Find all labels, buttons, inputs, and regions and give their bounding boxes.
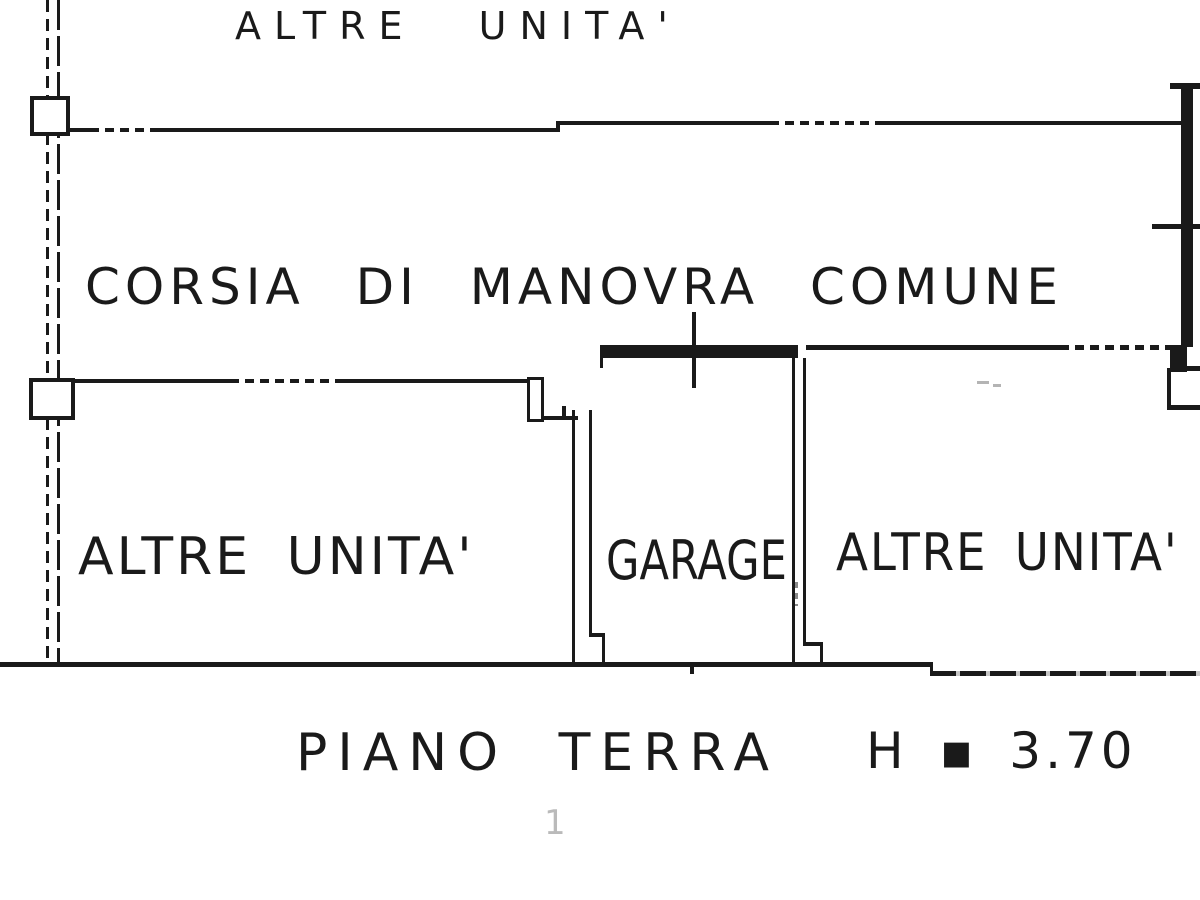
garage-right-foot-v	[820, 642, 823, 663]
wall-right-tick	[1152, 224, 1200, 229]
floor-plan: ALTRE UNITA' CORSIA DI MANOVRA COMUNE AL…	[0, 0, 1200, 900]
garage-wall-right-inner	[803, 358, 806, 646]
label-corridor: CORSIA DI MANOVRA COMUNE	[85, 262, 1063, 312]
floor-line-left	[0, 662, 933, 667]
garage-dimension-tick	[692, 312, 696, 388]
wall-top-scan-break-a	[770, 121, 880, 125]
pillar-top	[30, 96, 70, 136]
label-ceiling-height: H ▪ 3.70	[866, 726, 1137, 776]
wall-top-scan-break-b	[90, 128, 150, 132]
faint-dash-a	[977, 381, 989, 384]
garage-wall-right-outer	[792, 358, 795, 663]
right-notch-vertical	[1167, 368, 1171, 410]
label-right-unit: ALTRE UNITA'	[836, 527, 1179, 579]
right-edge-stub-lower	[1170, 405, 1200, 410]
garage-wall-left-outer	[572, 410, 575, 663]
label-top-unit: ALTRE UNITA'	[235, 7, 681, 45]
wall-corridor-scan-break	[230, 379, 335, 383]
garage-wall-left-inner	[589, 410, 592, 637]
wall-right-unit-scan-break	[1060, 345, 1165, 350]
wall-right-main	[1181, 85, 1193, 347]
door-jamb	[527, 377, 544, 422]
garage-wall-top	[600, 345, 798, 358]
page-mark: 1	[544, 806, 568, 840]
label-left-unit: ALTRE UNITA'	[78, 531, 475, 583]
floor-line-right	[930, 671, 1200, 676]
label-garage: GARAGE	[606, 534, 787, 588]
door-notch-h	[562, 416, 578, 420]
floor-tick	[690, 667, 694, 674]
garage-cavity-dash	[795, 582, 798, 606]
faint-dash-b	[993, 384, 1001, 387]
right-edge-stub-upper	[1183, 366, 1200, 371]
garage-left-foot-v	[602, 633, 605, 663]
label-floor-level: PIANO TERRA	[296, 727, 779, 779]
pillar-middle	[29, 378, 75, 420]
